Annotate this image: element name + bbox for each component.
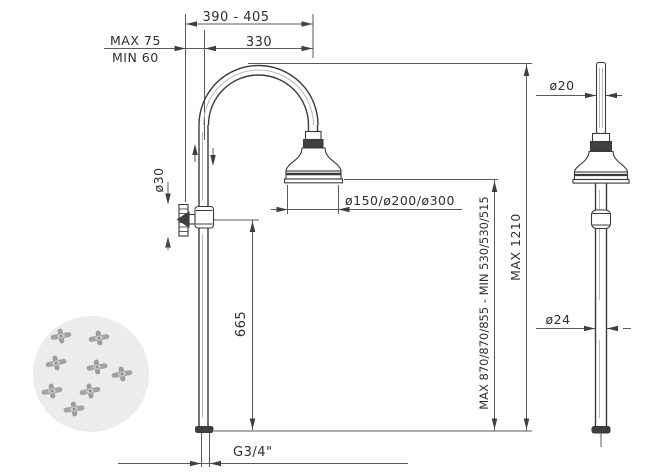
- dimension-lines: [104, 14, 532, 467]
- label-330: 330: [246, 35, 272, 50]
- label-dia20: ø20: [549, 78, 574, 93]
- riser-pipe: [199, 125, 208, 427]
- label-dia24: ø24: [545, 312, 570, 327]
- bottom-inlet: [196, 427, 214, 433]
- side-coupler: [592, 210, 611, 229]
- tee-connector: [195, 207, 214, 229]
- shower-head-side: [573, 152, 629, 184]
- label-dia30: ø30: [151, 167, 166, 192]
- top-tube: [597, 63, 606, 134]
- adjust-arrows: [192, 144, 216, 166]
- side-bottom-flange: [592, 427, 610, 448]
- label-max75: MAX 75: [110, 33, 161, 48]
- label-min60: MIN 60: [112, 50, 159, 65]
- label-390-405: 390 - 405: [202, 10, 269, 25]
- label-g34-thread: G3/4": [233, 445, 272, 460]
- wall-union: [178, 205, 196, 237]
- label-dia150-200-300: ø150/ø200/ø300: [345, 193, 455, 208]
- head-connector: [304, 125, 324, 149]
- side-view: [536, 63, 631, 448]
- dia20-dimension: [536, 93, 622, 99]
- label-max870-min530: MAX 870/870/855 - MIN 530/530/515: [477, 196, 491, 410]
- shower-column-drawing: 390 - 405 MAX 75 MIN 60 330 ø30 ø150/ø20…: [0, 0, 645, 472]
- label-max1210: MAX 1210: [508, 213, 523, 281]
- shower-head-front: [285, 148, 343, 183]
- front-view: [178, 66, 343, 433]
- brand-watermark: [33, 316, 149, 432]
- label-665: 665: [234, 311, 249, 337]
- technical-drawing-page: 390 - 405 MAX 75 MIN 60 330 ø30 ø150/ø20…: [0, 0, 645, 472]
- side-head-connector: [591, 134, 612, 152]
